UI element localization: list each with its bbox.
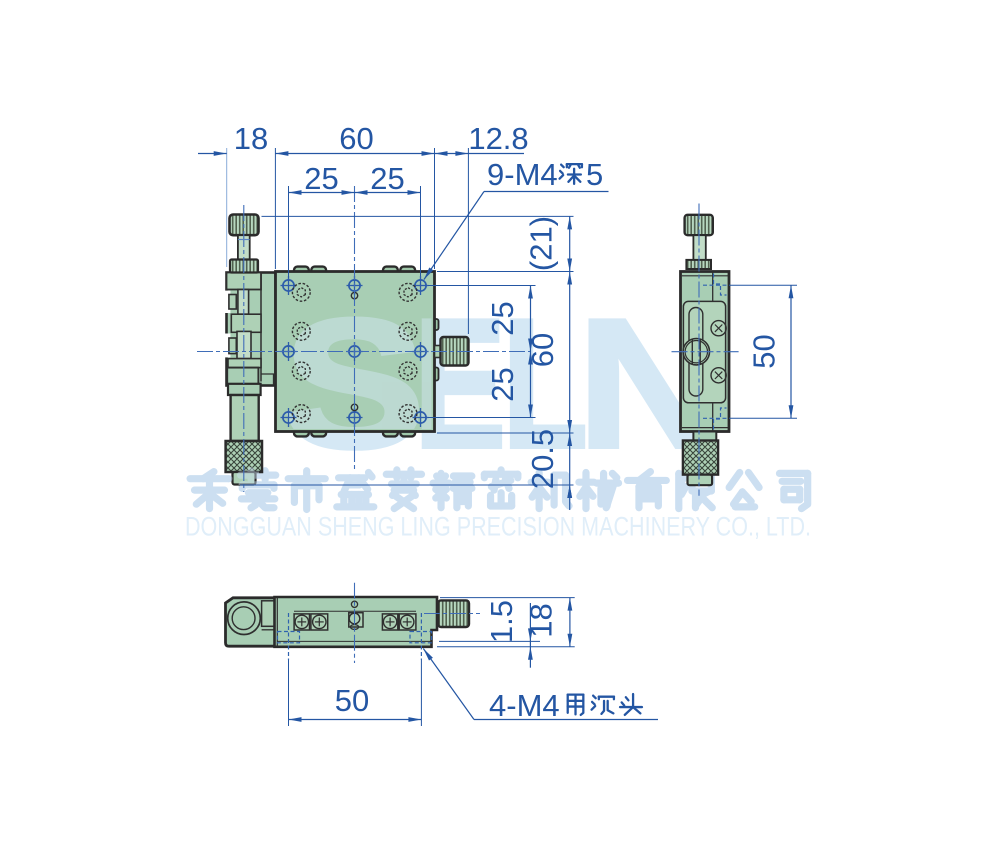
svg-text:25: 25 <box>370 161 404 196</box>
svg-text:20.5: 20.5 <box>525 429 560 489</box>
svg-text:25: 25 <box>485 367 520 401</box>
svg-text:(21): (21) <box>524 216 559 271</box>
svg-text:5: 5 <box>586 157 603 192</box>
svg-text:12.8: 12.8 <box>468 121 528 156</box>
svg-text:50: 50 <box>747 334 782 368</box>
svg-text:4-M4: 4-M4 <box>489 688 560 723</box>
svg-text:25: 25 <box>485 301 520 335</box>
svg-text:60: 60 <box>339 121 373 156</box>
svg-text:9-M4: 9-M4 <box>487 157 558 192</box>
svg-text:50: 50 <box>335 683 369 718</box>
svg-text:1.5: 1.5 <box>484 600 519 643</box>
svg-text:18: 18 <box>524 603 559 637</box>
svg-text:25: 25 <box>304 161 338 196</box>
svg-text:18: 18 <box>234 121 268 156</box>
